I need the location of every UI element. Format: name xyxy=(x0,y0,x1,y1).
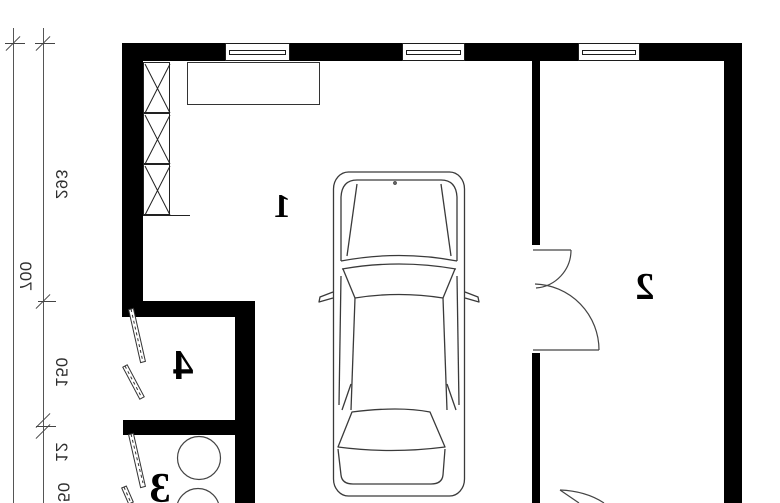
car-trunk xyxy=(338,449,445,484)
car-cowl-line xyxy=(341,256,457,262)
car-windshield-base xyxy=(342,264,456,269)
car-a-pillar-left xyxy=(343,269,355,298)
door-arc-room2-bottom xyxy=(560,490,604,503)
door-leaf-room4-lower xyxy=(123,365,144,399)
car-door-line-right xyxy=(457,276,459,405)
car-roof-side-right xyxy=(443,298,447,410)
round-fixture-1 xyxy=(178,437,221,480)
car-roof-front xyxy=(355,295,443,299)
door-leaf-bottom-left xyxy=(122,486,134,503)
car-hood-crease-right xyxy=(441,184,451,256)
car-rear-window xyxy=(338,409,445,451)
car-hood-emblem xyxy=(394,182,396,184)
car-hood xyxy=(341,180,457,261)
car-mirror-left xyxy=(319,292,333,302)
double-door-room1-room2 xyxy=(533,250,599,350)
door-leaf-room3 xyxy=(129,433,146,487)
car-top-view xyxy=(315,170,485,503)
garage-floor-plan: 700 293 150 12 50 1 2 3 4 xyxy=(0,0,780,503)
car-a-pillar-right xyxy=(443,269,455,298)
car-door-line-left xyxy=(339,276,341,405)
door-leaf-room4-upper xyxy=(129,308,146,362)
car-hood-crease-left xyxy=(347,184,357,256)
round-fixture-2 xyxy=(177,489,220,503)
car-mirror-right xyxy=(465,292,479,302)
car-quarter-right xyxy=(447,384,456,410)
car-roof-side-left xyxy=(351,298,355,410)
car-quarter-left xyxy=(342,384,351,410)
